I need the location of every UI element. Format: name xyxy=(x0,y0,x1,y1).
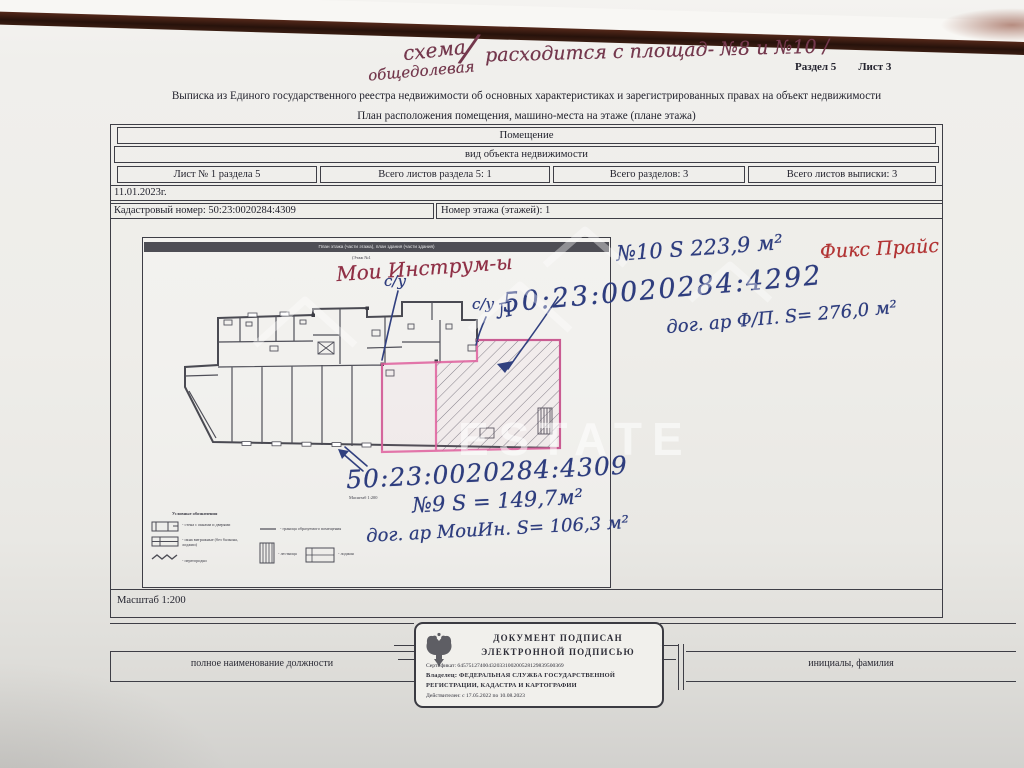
chevron-watermark-svg xyxy=(0,0,1024,768)
site-watermark-text: ESTATE xyxy=(458,412,693,466)
scanned-document-photo: Раздел 5 Лист 3 Выписка из Единого госуд… xyxy=(0,0,1024,768)
